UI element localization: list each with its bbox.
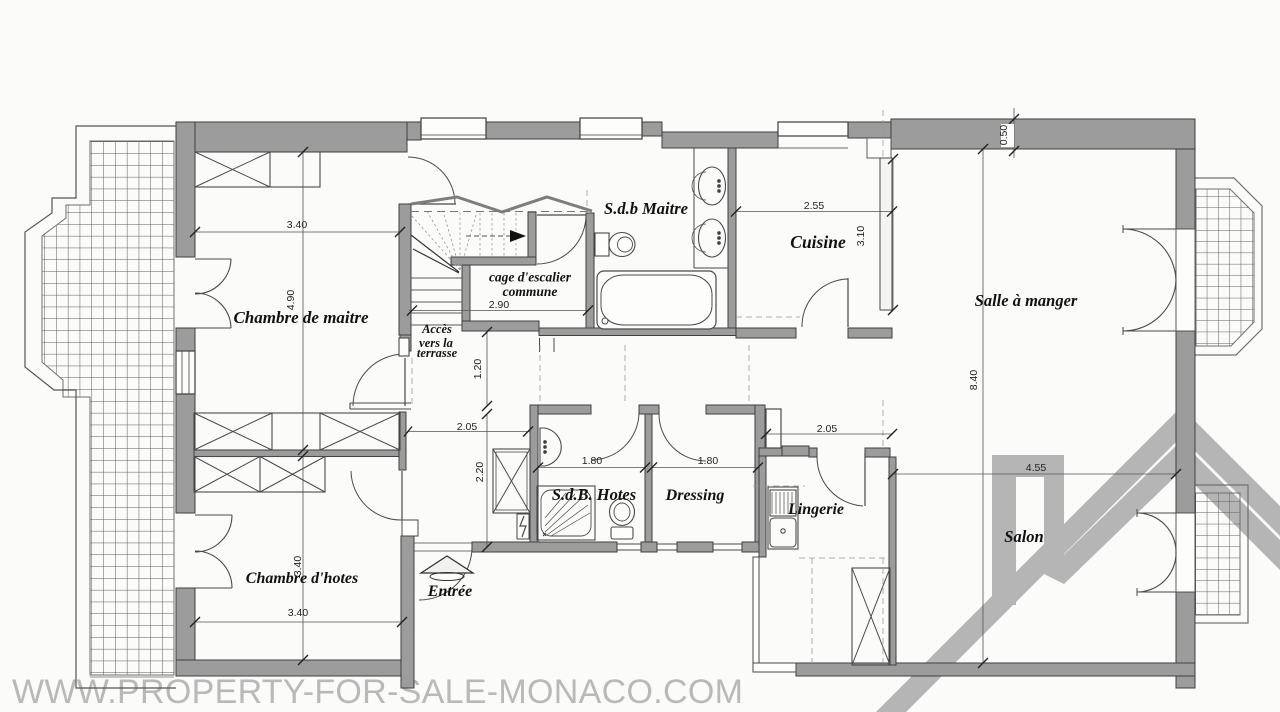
svg-text:3.40: 3.40 [288, 607, 309, 619]
svg-text:1.20: 1.20 [472, 359, 484, 380]
svg-text:cage d'escalier: cage d'escalier [489, 270, 572, 285]
svg-text:Dressing: Dressing [665, 487, 725, 504]
svg-text:terrasse: terrasse [417, 346, 458, 360]
svg-text:S.d.b Maitre: S.d.b Maitre [604, 199, 688, 218]
svg-text:Salon: Salon [1004, 527, 1043, 546]
svg-text:2.55: 2.55 [804, 200, 825, 212]
svg-text:1.80: 1.80 [582, 455, 603, 467]
svg-text:Chambre de maitre: Chambre de maitre [233, 308, 369, 327]
svg-text:Salle à manger: Salle à manger [975, 291, 1078, 310]
svg-text:S.d.B. Hotes: S.d.B. Hotes [552, 485, 636, 504]
svg-text:Lingerie: Lingerie [787, 501, 844, 518]
svg-text:8.40: 8.40 [968, 370, 980, 391]
svg-text:WWW.PROPERTY-FOR-SALE-MONACO.C: WWW.PROPERTY-FOR-SALE-MONACO.COM [12, 673, 743, 711]
svg-text:Chambre d'hotes: Chambre d'hotes [246, 570, 358, 587]
svg-text:Entrée: Entrée [427, 583, 472, 600]
svg-text:Cuisine: Cuisine [790, 232, 846, 252]
svg-text:1.80: 1.80 [698, 455, 719, 467]
svg-text:3.10: 3.10 [855, 226, 867, 247]
svg-text:0.50: 0.50 [998, 125, 1010, 146]
svg-text:commune: commune [503, 284, 558, 299]
svg-text:2.20: 2.20 [474, 462, 486, 483]
svg-text:Accès: Accès [421, 322, 452, 336]
svg-text:2.90: 2.90 [489, 299, 510, 311]
svg-text:4.55: 4.55 [1026, 462, 1047, 474]
svg-text:3.40: 3.40 [287, 219, 308, 231]
svg-text:2.05: 2.05 [817, 423, 838, 435]
svg-text:2.05: 2.05 [457, 421, 478, 433]
